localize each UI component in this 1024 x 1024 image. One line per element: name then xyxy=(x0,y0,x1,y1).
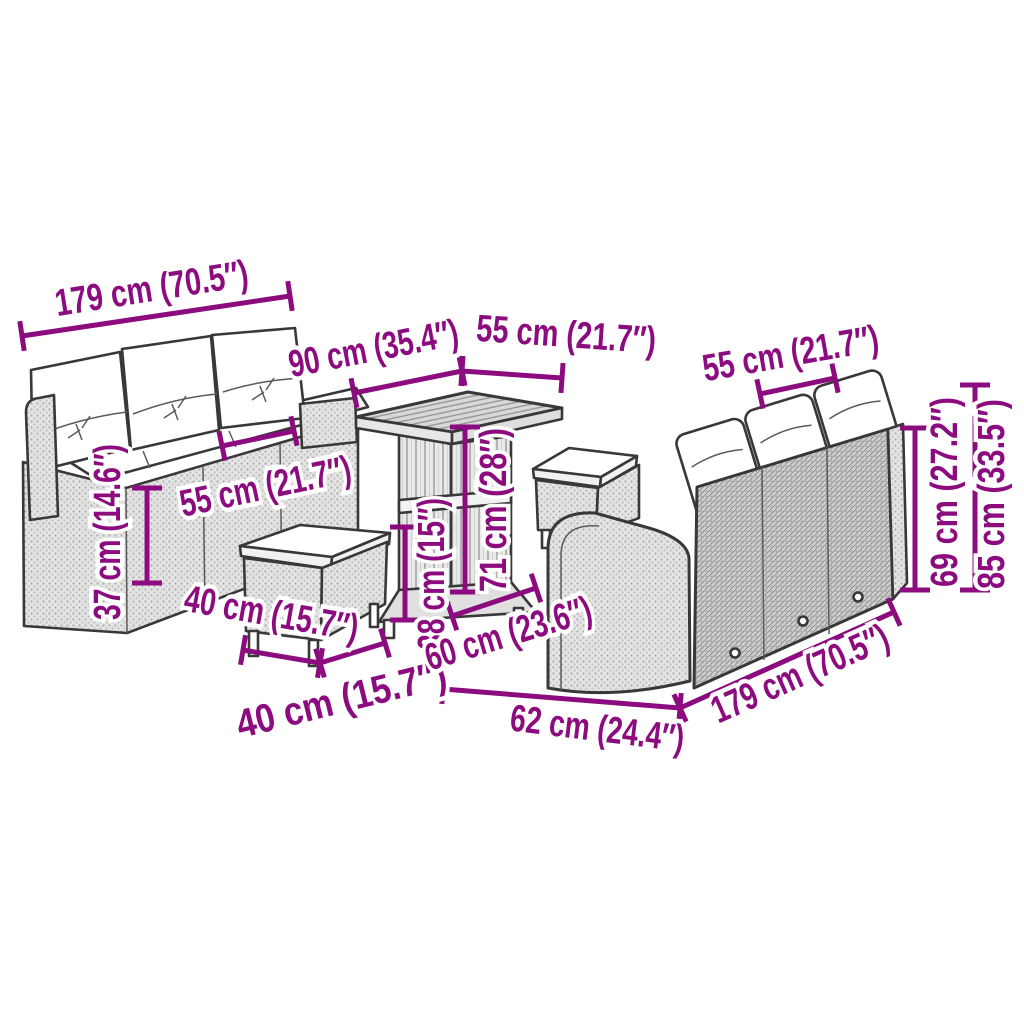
left-sofa-right-armrest xyxy=(300,398,357,448)
label-right-sofa-back-height: 69 cm (27.2″) xyxy=(924,397,966,587)
right-sofa-screw-hole xyxy=(799,617,808,626)
right-sofa-screw-hole xyxy=(731,649,740,658)
dim-right-sofa-back-depth-cap xyxy=(757,379,763,408)
label-table-height: 71 cm (28″) xyxy=(473,428,515,592)
dim-left-sofa-width-cap xyxy=(20,321,24,351)
dim-table-width xyxy=(354,371,462,393)
right-sofa-screw-hole xyxy=(854,593,863,602)
label-left-sofa-seat-height: 37 cm (14.6″) xyxy=(87,444,129,620)
dim-left-sofa-width-cap xyxy=(288,281,292,311)
label-stool-depth: 40 cm (15.7″) xyxy=(232,652,451,747)
dim-table-depth-cap xyxy=(461,356,463,386)
dim-table-depth xyxy=(462,371,562,378)
label-table-depth: 55 cm (21.7″) xyxy=(475,308,657,362)
left-sofa-armrest xyxy=(26,395,58,520)
label-right-sofa-total-height: 85 cm (33.5″) xyxy=(971,399,1013,589)
dim-table-depth-cap xyxy=(561,363,563,393)
diagram-canvas: 179 cm (70.5″) 90 cm (35.4″) 55 cm (21.7… xyxy=(0,0,1024,1024)
label-table-shelf-height: 38 cm (15″) xyxy=(411,498,453,650)
dimension-diagram: 179 cm (70.5″) 90 cm (35.4″) 55 cm (21.7… xyxy=(0,0,1024,1024)
left-sofa-back-cushion xyxy=(122,336,219,450)
table-foot xyxy=(384,620,394,638)
stool-leg xyxy=(370,604,378,627)
dim-stool-width-cap xyxy=(241,635,246,665)
